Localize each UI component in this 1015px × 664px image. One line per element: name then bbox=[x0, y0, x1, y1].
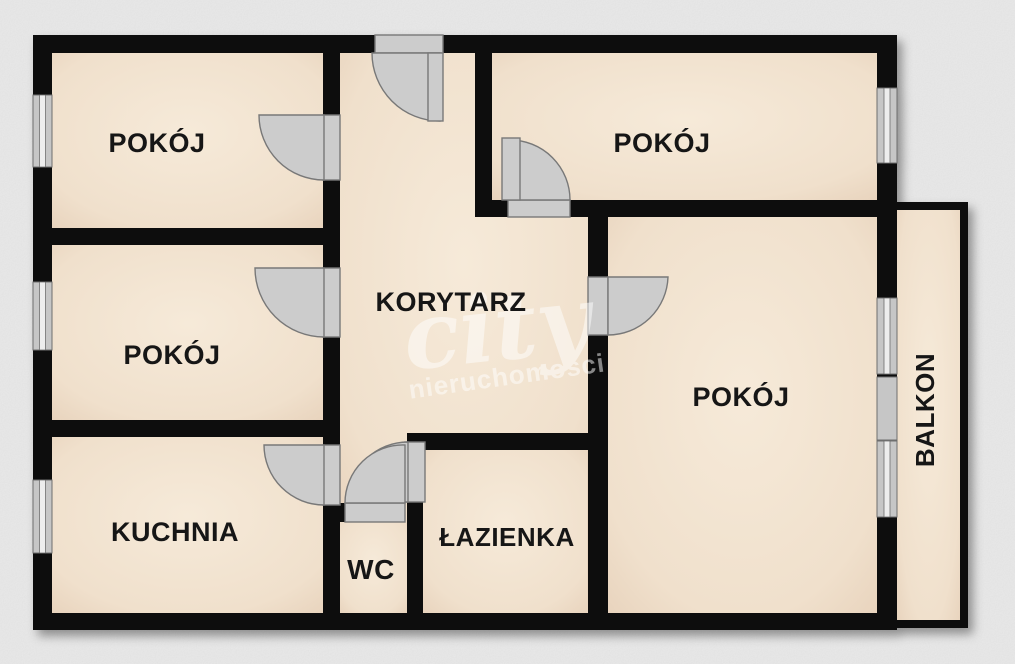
room-label-wc: WC bbox=[347, 554, 395, 585]
wall-balcony-right bbox=[960, 202, 968, 628]
window-pane bbox=[40, 95, 46, 167]
door-threshold-room-top-right bbox=[508, 200, 570, 217]
room-label-balkon: BALKON bbox=[910, 353, 940, 467]
door-threshold-kitchen bbox=[323, 445, 340, 505]
door-threshold-room-right bbox=[588, 277, 608, 335]
room-label-pokoj-right: POKÓJ bbox=[692, 381, 789, 412]
wall-outer-bottom bbox=[33, 613, 897, 630]
door-leaf-room-top-right bbox=[502, 138, 520, 200]
window-pane bbox=[884, 88, 890, 163]
window-pane bbox=[884, 441, 890, 517]
door-leaf-entrance bbox=[428, 53, 443, 121]
floor-plan-svg: city nieruchomości POKÓJ POKÓJ POKÓJ KOR… bbox=[0, 0, 1015, 664]
room-label-pokoj-mid-left: POKÓJ bbox=[123, 339, 220, 370]
wall-balcony-bottom bbox=[890, 620, 968, 628]
floor-plan: city nieruchomości POKÓJ POKÓJ POKÓJ KOR… bbox=[0, 0, 1015, 664]
wall-rooms-left-divider-1 bbox=[33, 228, 340, 245]
room-label-pokoj-top-right: POKÓJ bbox=[613, 127, 710, 158]
door-threshold-wc bbox=[345, 503, 405, 522]
wall-corridor-right-upper bbox=[475, 35, 492, 217]
window-pane bbox=[40, 282, 46, 350]
plan-body: city nieruchomości POKÓJ POKÓJ POKÓJ KOR… bbox=[33, 35, 968, 630]
wall-bathroom-top bbox=[407, 433, 608, 450]
door-threshold-room-mid-left bbox=[323, 268, 340, 337]
wall-balcony-top bbox=[897, 202, 968, 210]
wall-rooms-left-divider-2 bbox=[33, 420, 340, 437]
room-label-korytarz: KORYTARZ bbox=[376, 287, 527, 317]
room-label-kuchnia: KUCHNIA bbox=[111, 517, 239, 547]
window-pane bbox=[884, 298, 890, 374]
window-pane bbox=[40, 480, 46, 553]
room-label-lazienka: ŁAZIENKA bbox=[439, 522, 574, 552]
wall-room-right-left bbox=[588, 200, 608, 630]
door-threshold-entrance bbox=[375, 35, 443, 53]
wall-outer-top bbox=[33, 35, 897, 53]
balcony-door-panel bbox=[877, 377, 897, 440]
door-threshold-room-top-left bbox=[323, 115, 340, 180]
room-label-pokoj-top-left: POKÓJ bbox=[108, 127, 205, 158]
